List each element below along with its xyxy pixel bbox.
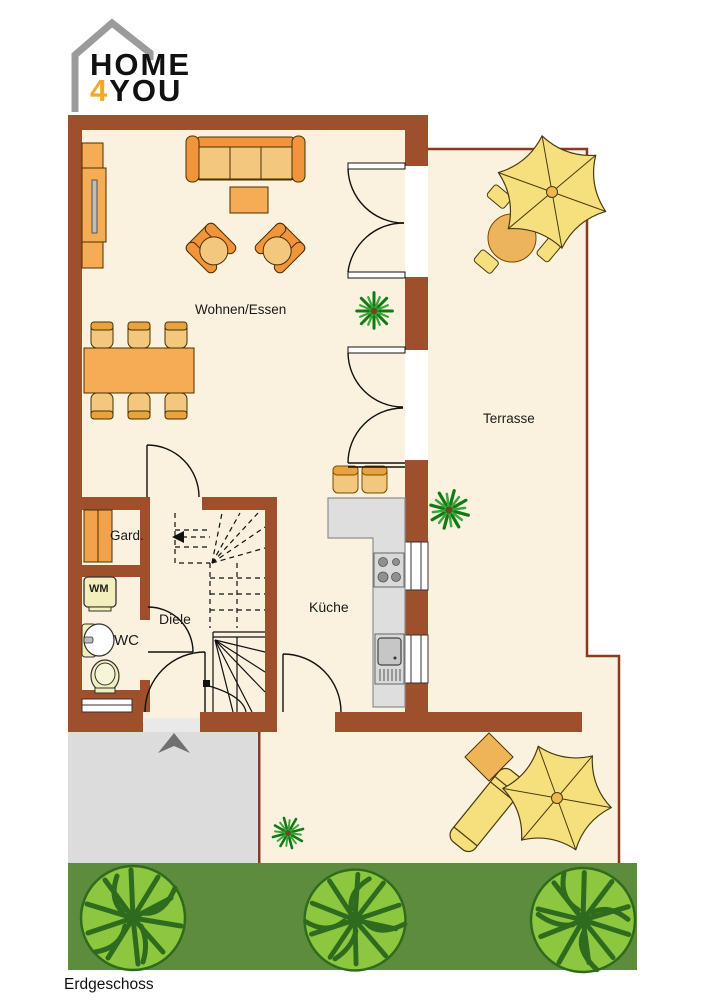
- dining-chair: [128, 322, 150, 348]
- toilet: [91, 660, 119, 693]
- sofa: [186, 136, 305, 182]
- bush-left: [81, 866, 185, 970]
- dining-chair: [128, 393, 150, 419]
- room-label-terrasse: Terrasse: [483, 411, 535, 426]
- kitchen-window-lower: [405, 635, 428, 683]
- bar-stool: [333, 466, 358, 493]
- wc-sink: [82, 624, 114, 657]
- logo-line2: 4YOU: [90, 78, 191, 104]
- floorplan-page: HOME 4YOU Wohnen/Essen Terrasse Gard. Di…: [0, 0, 706, 1000]
- wardrobe: [84, 510, 112, 562]
- logo-digit: 4: [90, 73, 109, 108]
- room-label-kueche: Küche: [309, 599, 349, 615]
- door-mat: [139, 718, 206, 732]
- kitchen-window-upper: [405, 542, 428, 590]
- room-label-garderobe: Gard.: [110, 528, 144, 543]
- floorplan-drawing: [0, 0, 706, 1000]
- tv-sideboard: [82, 143, 106, 268]
- dining-chair: [165, 393, 187, 419]
- logo: HOME 4YOU: [90, 52, 191, 104]
- cooktop: [374, 553, 404, 587]
- room-label-diele: Diele: [159, 611, 191, 627]
- room-label-wc: WC: [114, 632, 139, 649]
- wc-window: [82, 699, 132, 712]
- logo-word2: YOU: [109, 73, 182, 108]
- dining-table: [84, 348, 194, 393]
- porch-area: [68, 732, 258, 863]
- coffee-table: [230, 187, 268, 213]
- bar-stool: [362, 466, 387, 493]
- room-label-wohnen-essen: Wohnen/Essen: [195, 302, 286, 317]
- dining-chair: [91, 322, 113, 348]
- floor-title: Erdgeschoss: [64, 976, 154, 994]
- plant-living: [357, 293, 393, 329]
- washing-machine-label: WM: [89, 583, 109, 595]
- dining-chair: [91, 393, 113, 419]
- dining-chair: [165, 322, 187, 348]
- kitchen-sink: [375, 634, 404, 684]
